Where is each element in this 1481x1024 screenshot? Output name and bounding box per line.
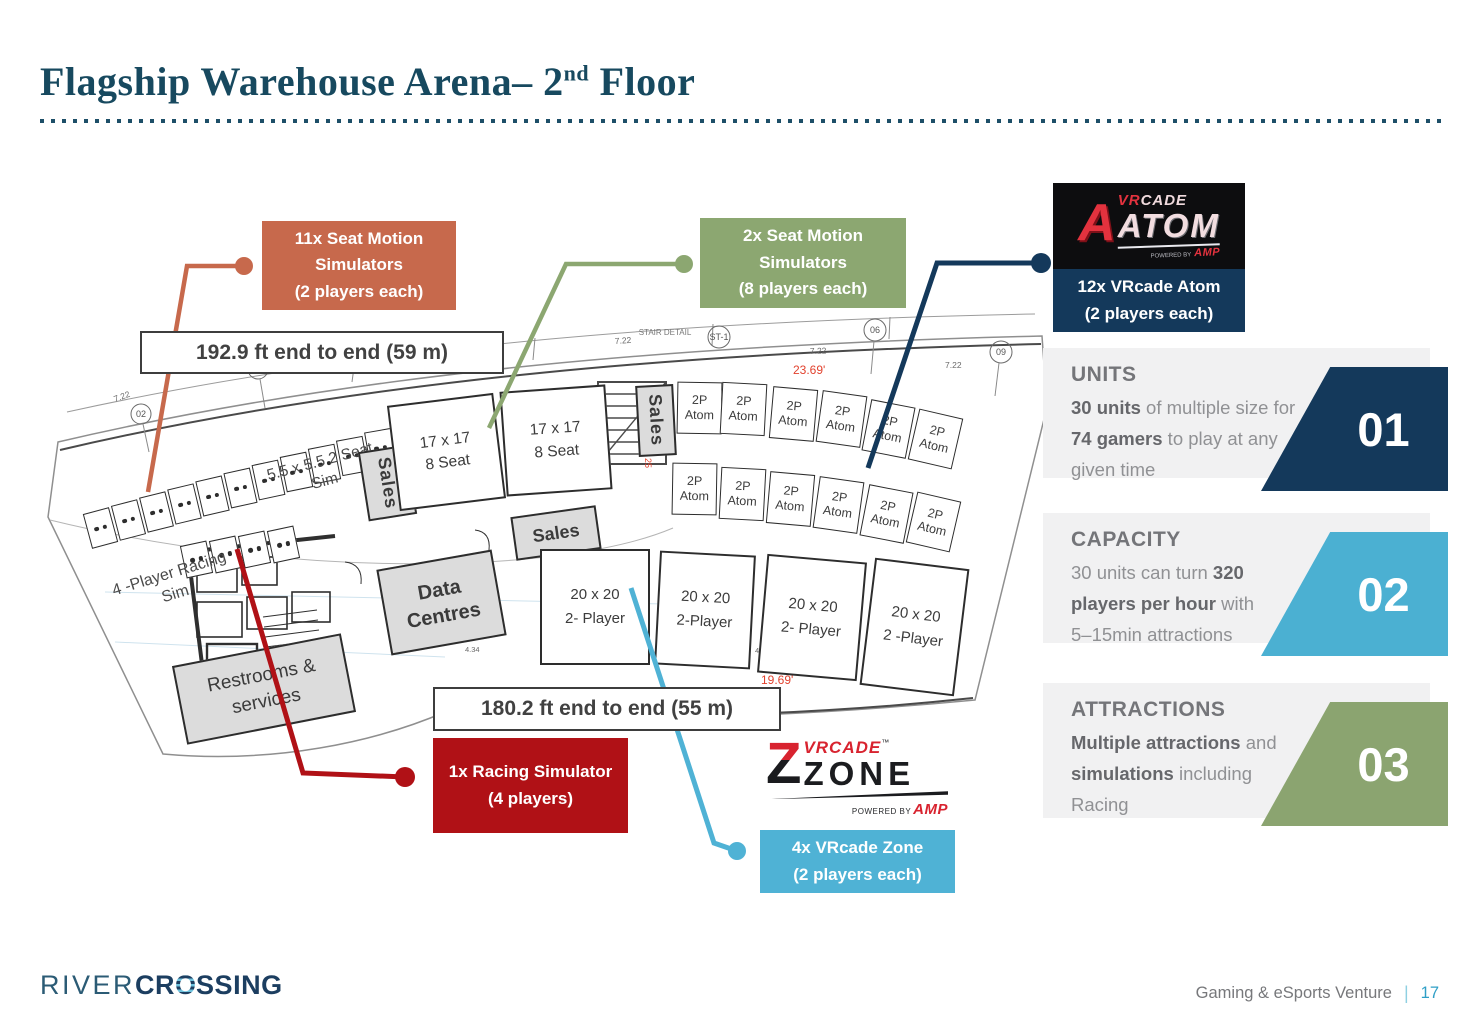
amp-logo-text: AMP [1194, 246, 1220, 259]
atom-name: Atom [778, 413, 808, 430]
footer-divider: | [1404, 983, 1409, 1004]
plan-unit-2p-atom: 2PAtom [672, 463, 718, 516]
plan-unit-2p-atom: 2PAtom [677, 382, 723, 435]
panel-bold: Multiple attractions [1071, 732, 1241, 753]
dim-434: 4.34 [465, 645, 480, 654]
callout-line: (4 players) [488, 786, 573, 812]
dim-722: 7.22 [945, 360, 962, 370]
atom-players: 2P [736, 394, 752, 410]
panel-bold: simulations [1071, 763, 1174, 784]
title-text: Flagship Warehouse Arena– 2 [40, 59, 564, 104]
plan-room-20x20: 20 x 20 2 -Player [860, 558, 970, 697]
title-divider [40, 119, 1441, 123]
dim-25: 25 [643, 458, 653, 468]
page-number: 17 [1421, 984, 1439, 1003]
room-type: 2- Player [780, 615, 842, 644]
callout-line: 12x VRcade Atom [1078, 274, 1221, 300]
panel-bold: 320 [1213, 562, 1244, 583]
orange-connector-dot [235, 257, 253, 275]
cyan-connector-dot [728, 842, 746, 860]
dim-722: 7.22 [112, 389, 131, 404]
room-type: 2- Player [565, 607, 625, 631]
atom-logo-a-glyph: A [1078, 197, 1116, 249]
rivercrossing-logo: RIVERCROSSING [40, 970, 283, 1001]
atom-name: Atom [822, 503, 853, 522]
powered-by-text: POWERED BY [1150, 252, 1191, 259]
panel-regular: 5–15min attractions [1071, 624, 1232, 645]
atom-name: Atom [685, 408, 714, 424]
room-type: 8 Seat [534, 439, 580, 465]
dim-722: 7.22 [614, 335, 631, 346]
title-text-end: Floor [589, 59, 695, 104]
callout-seat-motion-11: 11x Seat Motion Simulators (2 players ea… [262, 221, 456, 310]
room-type: 8 Seat [424, 449, 471, 477]
stair-detail-label: STAIR DETAIL [639, 328, 692, 337]
grid-02: 02 [136, 409, 146, 419]
footer-meta: Gaming & eSports Venture | 17 [1196, 983, 1439, 1004]
atom-name: Atom [918, 436, 950, 457]
powered-by-text: POWERED BY [852, 807, 911, 816]
callout-vrcade-atom: 12x VRcade Atom (2 players each) [1053, 269, 1245, 332]
atom-name: Atom [916, 519, 948, 540]
panel-number: 03 [1357, 737, 1409, 792]
callout-line: Simulators [315, 252, 403, 278]
plan-room-20x20: 20 x 20 2- Player [540, 549, 650, 665]
vrcade-atom-logo: A VRCADE ATOM POWERED BYAMP [1053, 183, 1245, 269]
panel-regular: to play at any [1163, 428, 1278, 449]
sales-box: Sales [635, 384, 677, 457]
plan-unit-2p-atom: 2PAtom [769, 386, 818, 442]
plan-room-17x17: 17 x 17 8 Seat [499, 384, 612, 496]
grid-09: 09 [996, 347, 1006, 357]
atom-name: Atom [727, 493, 757, 510]
plan-unit-2p-atom: 2PAtom [813, 476, 865, 534]
callout-line: (8 players each) [739, 276, 868, 302]
panel-regular: of multiple size for [1141, 397, 1295, 418]
atom-players: 2P [687, 474, 703, 489]
plan-room-20x20: 20 x 20 2-Player [654, 551, 756, 670]
callout-line: 1x Racing Simulator [449, 759, 612, 785]
brand-o-wave-icon: O [175, 970, 196, 1000]
plan-unit-2p-atom: 2PAtom [766, 471, 815, 527]
brand-river: RIVER [40, 970, 135, 1000]
atom-name: Atom [680, 489, 709, 505]
plan-room-20x20: 20 x 20 2- Player [757, 554, 867, 681]
panel-regular: with [1216, 593, 1254, 614]
room-type: 2-Player [676, 609, 733, 636]
vrcade-zone-logo: Z VRCADE™ ZONE POWERED BYAMP [760, 736, 954, 828]
callout-line: 4x VRcade Zone [792, 835, 923, 861]
navy-connector-dot [1031, 253, 1051, 273]
measurement-top: 192.9 ft end to end (59 m) [140, 331, 504, 374]
slide: Flagship Warehouse Arena– 2nd Floor [0, 0, 1481, 1024]
brand-ssing: SSING [196, 970, 283, 1000]
atom-name: Atom [871, 426, 903, 446]
atom-players: 2P [735, 479, 751, 495]
callout-line: Simulators [759, 250, 847, 276]
callout-vrcade-zone: 4x VRcade Zone (2 players each) [760, 830, 955, 893]
room-size: 20 x 20 [570, 583, 619, 607]
atom-name: Atom [728, 408, 758, 425]
info-panel-attractions: ATTRACTIONS Multiple attractions and sim… [1043, 683, 1430, 818]
panel-number: 01 [1357, 402, 1409, 457]
zone-logo-trademark: ™ [881, 738, 889, 747]
panel-number: 02 [1357, 567, 1409, 622]
panel-regular: 30 units can turn [1071, 562, 1213, 583]
atom-name: Atom [869, 511, 901, 531]
panel-regular: and [1241, 732, 1277, 753]
page-title: Flagship Warehouse Arena– 2nd Floor [40, 58, 695, 105]
title-superscript: nd [564, 61, 589, 86]
brand-cr: CR [135, 970, 175, 1000]
plan-unit-2p-atom: 2PAtom [719, 467, 767, 521]
plan-unit-2p-atom: 2PAtom [816, 390, 868, 448]
callout-line: (2 players each) [295, 279, 424, 305]
info-panel-capacity: CAPACITY 30 units can turn 320 players p… [1043, 513, 1430, 643]
callout-seat-motion-2: 2x Seat Motion Simulators (8 players eac… [700, 218, 906, 308]
info-panel-units: UNITS 30 units of multiple size for 74 g… [1043, 348, 1430, 478]
panel-regular: Racing [1071, 794, 1129, 815]
callout-line: 2x Seat Motion [743, 223, 863, 249]
atom-players: 2P [786, 398, 803, 414]
grid-06: 06 [870, 325, 880, 335]
plan-unit-2p-atom: 2PAtom [720, 382, 768, 436]
atom-name: Atom [775, 498, 805, 515]
callout-line: (2 players each) [793, 862, 922, 888]
dim-722: 7.22 [810, 345, 827, 356]
atom-logo-name: ATOM [1118, 209, 1220, 242]
callout-line: (2 players each) [1085, 301, 1214, 327]
zone-logo-powered-by: POWERED BYAMP [766, 801, 948, 818]
measurement-bottom: 180.2 ft end to end (55 m) [433, 687, 781, 731]
panel-bold: players per hour [1071, 593, 1216, 614]
panel-regular: including [1174, 763, 1252, 784]
atom-logo-powered-by: POWERED BYAMP [1117, 243, 1220, 262]
data-centres-line2: Centres [405, 596, 483, 635]
atom-players: 2P [692, 393, 708, 408]
atom-name: Atom [825, 417, 856, 436]
dim-2369: 23.69' [793, 363, 825, 377]
room-size: 20 x 20 [680, 585, 730, 612]
callout-racing-sim: 1x Racing Simulator (4 players) [433, 738, 628, 833]
zone-logo-name: ZONE [803, 758, 915, 789]
footer-tagline: Gaming & eSports Venture [1196, 984, 1392, 1003]
green-connector-dot [675, 255, 693, 273]
panel-bold: 74 gamers [1071, 428, 1163, 449]
panel-bold: 30 units [1071, 397, 1141, 418]
zone-logo-z-glyph: Z [766, 738, 801, 790]
atom-players: 2P [783, 483, 800, 499]
amp-logo-text: AMP [913, 801, 948, 818]
plan-room-17x17: 17 x 17 8 Seat [387, 393, 506, 511]
grid-st1: ST-1 [709, 332, 728, 342]
callout-line: 11x Seat Motion [295, 226, 423, 252]
panel-regular: given time [1071, 459, 1155, 480]
